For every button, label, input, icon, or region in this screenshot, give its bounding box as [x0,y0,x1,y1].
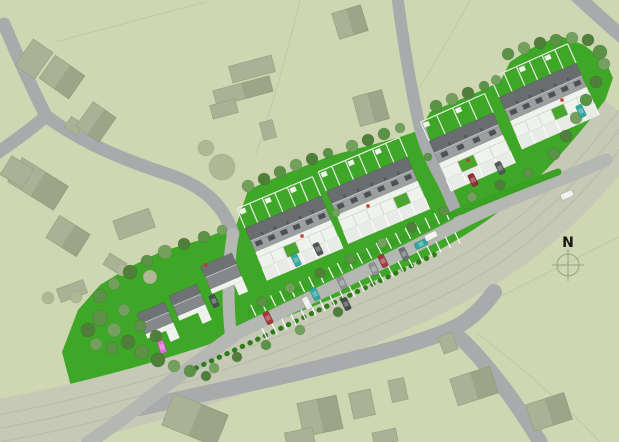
tree [198,140,214,156]
site-plan-viewport: N [0,0,619,442]
rooflight [366,204,369,207]
tree [491,75,501,85]
tree [258,173,270,185]
tree [168,360,180,372]
rooflight [466,158,469,161]
tree [93,289,107,303]
tree [121,335,135,349]
tree [467,192,477,202]
tree [495,180,505,190]
tree [107,323,121,337]
tree [377,238,387,248]
tree [108,278,120,290]
tree [346,140,358,152]
tree [550,34,562,46]
tree [118,304,130,316]
tree [42,292,54,304]
tree [378,128,390,140]
tree [345,254,355,264]
tree [274,166,286,178]
tree [560,130,572,142]
tree [306,153,318,165]
tree [209,363,219,373]
tree [232,352,242,362]
tree [151,353,165,367]
rooflight [204,263,207,266]
tree [315,268,325,278]
tree [582,34,594,46]
tree [566,32,578,44]
tree [395,123,405,133]
tree [295,325,305,335]
tree [123,265,137,279]
tree [430,100,442,112]
tree [462,87,474,99]
tree [217,225,227,235]
tree [81,323,95,337]
tree [598,58,610,70]
tree [590,76,602,88]
tree [92,310,108,326]
tree [261,340,271,350]
tree [134,320,146,332]
tree [479,81,489,91]
tree [198,231,210,243]
tree [90,338,102,350]
tree [106,342,118,354]
tree [158,245,172,259]
tree [424,153,432,161]
tree [446,93,458,105]
tree [439,206,449,216]
rooflight [300,234,303,237]
tree [184,365,196,377]
tree [150,330,162,342]
rooflight [560,98,563,101]
tree [362,134,374,146]
tree [323,148,333,158]
tree [242,180,254,192]
tree [407,222,417,232]
tree [593,45,607,59]
tree [523,168,533,178]
tree [518,42,530,54]
north-label: N [562,235,574,251]
tree [534,37,546,49]
site-plan: N [0,0,619,442]
tree [70,291,82,303]
tree [580,94,592,106]
tree [502,48,514,60]
tree [257,297,267,307]
tree [201,371,211,381]
tree [209,154,235,180]
tree [290,159,302,171]
tree [135,345,149,359]
tree [548,148,560,160]
tree [178,238,190,250]
tree [285,283,295,293]
tree [143,270,157,284]
tree [141,255,153,267]
tree [333,307,343,317]
tree [332,209,340,217]
